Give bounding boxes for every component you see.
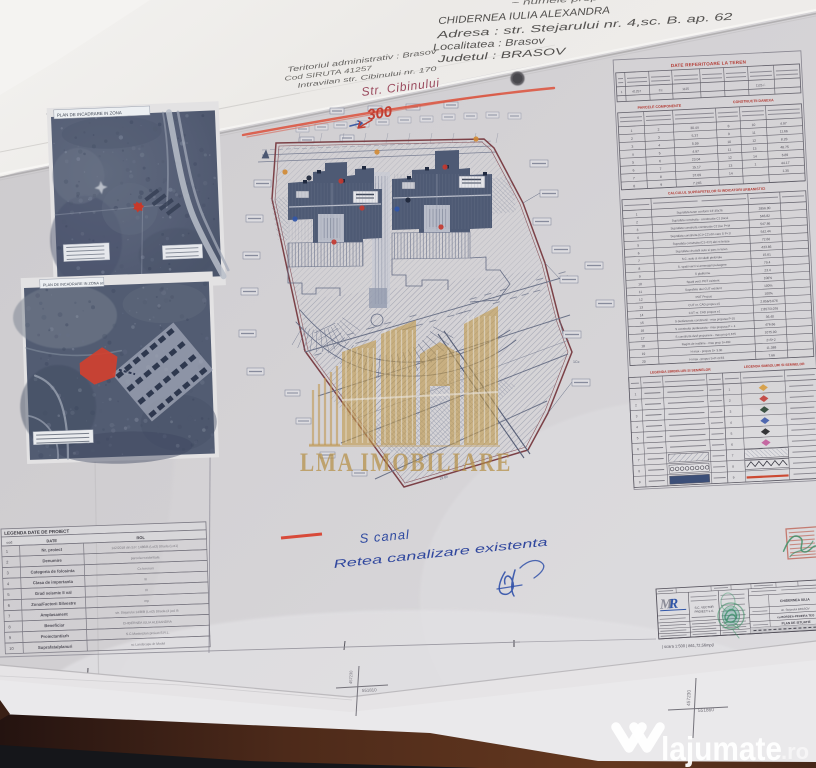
svg-text:Amplasament: Amplasament — [40, 612, 68, 618]
svg-text:11.388: 11.388 — [766, 345, 776, 349]
svg-text:14: 14 — [729, 171, 733, 175]
svg-text:44.17: 44.17 — [781, 161, 790, 165]
svg-text:8: 8 — [727, 124, 729, 128]
svg-text:12: 12 — [728, 156, 732, 160]
svg-text:7.66: 7.66 — [768, 353, 775, 357]
svg-text:12: 12 — [752, 139, 756, 143]
svg-text:551810: 551810 — [362, 687, 377, 693]
svg-text:15: 15 — [640, 321, 644, 325]
svg-text:10: 10 — [727, 140, 731, 144]
svg-text:12: 12 — [639, 298, 643, 302]
svg-text:37.09: 37.09 — [692, 173, 701, 177]
svg-text:100%: 100% — [764, 291, 773, 295]
svg-text:23.4: 23.4 — [764, 268, 771, 272]
svg-text:1Cc: 1Cc — [573, 360, 580, 364]
svg-text:Beneficiar: Beneficiar — [44, 622, 65, 628]
svg-text:1075.00: 1075.00 — [765, 330, 777, 335]
svg-text:546.82: 546.82 — [760, 214, 770, 218]
svg-text:Proiectant/arh: Proiectant/arh — [41, 633, 70, 639]
svg-text:mp: mp — [144, 599, 149, 603]
svg-text:79.4: 79.4 — [764, 260, 771, 264]
svg-text:14: 14 — [753, 154, 757, 158]
svg-text:2856.00: 2856.00 — [758, 206, 770, 211]
svg-text:14: 14 — [640, 313, 644, 317]
svg-text:4: 4 — [632, 153, 634, 157]
svg-text:DATE: DATE — [46, 538, 57, 543]
svg-text:457230: 457230 — [348, 670, 353, 684]
svg-text:6: 6 — [632, 168, 634, 172]
svg-text:9: 9 — [660, 183, 662, 187]
svg-text:III: III — [144, 577, 147, 581]
svg-text:15.61: 15.61 — [763, 253, 772, 257]
svg-text:Denumire: Denumire — [42, 558, 62, 564]
svg-text:6: 6 — [638, 251, 640, 255]
svg-text:30.44: 30.44 — [690, 126, 699, 130]
svg-text:1: 1 — [636, 213, 638, 217]
svg-text:36.40: 36.40 — [766, 315, 775, 319]
svg-text:5.09: 5.09 — [692, 142, 699, 146]
svg-text:1125 /-: 1125 /- — [756, 83, 766, 87]
svg-text:10: 10 — [751, 123, 755, 127]
svg-text:13: 13 — [728, 164, 732, 168]
svg-text:cod: cod — [6, 541, 12, 545]
svg-text:7: 7 — [638, 259, 640, 263]
svg-text:8: 8 — [638, 267, 640, 271]
svg-text:10: 10 — [638, 282, 642, 286]
svg-text:5.37: 5.37 — [691, 134, 698, 138]
svg-text:11: 11 — [752, 131, 756, 135]
svg-text:11: 11 — [639, 290, 643, 294]
svg-text:POT Propus: POT Propus — [695, 294, 712, 299]
svg-text:5: 5 — [632, 160, 634, 164]
svg-text:4: 4 — [658, 143, 660, 147]
svg-text:433.66: 433.66 — [761, 245, 771, 249]
svg-text:23.04: 23.04 — [692, 157, 701, 161]
svg-text:5: 5 — [659, 151, 661, 155]
svg-text:4.97: 4.97 — [692, 149, 699, 153]
svg-text:19: 19 — [642, 352, 646, 356]
svg-text:13: 13 — [639, 305, 643, 309]
svg-text:17: 17 — [641, 336, 645, 340]
svg-text:3: 3 — [636, 228, 638, 232]
svg-text:8.28: 8.28 — [781, 137, 788, 141]
svg-text:7: 7 — [659, 167, 661, 171]
svg-text:72.66: 72.66 — [762, 237, 771, 241]
svg-text:.ro: .ro — [781, 739, 809, 764]
svg-text:547.86: 547.86 — [760, 222, 770, 226]
svg-text:Nr. proiect: Nr. proiect — [41, 547, 62, 553]
svg-text:18: 18 — [641, 344, 645, 348]
svg-text:3: 3 — [631, 145, 633, 149]
svg-text:LMA IMOBILIARE: LMA IMOBILIARE — [300, 448, 512, 477]
svg-text:41257: 41257 — [632, 89, 641, 93]
svg-text:2: 2 — [631, 137, 633, 141]
svg-text:2: 2 — [636, 220, 638, 224]
svg-text:15.17: 15.17 — [692, 165, 701, 169]
svg-text:6: 6 — [659, 159, 661, 163]
svg-text:7: 7 — [633, 176, 635, 180]
svg-text:6.89: 6.89 — [782, 153, 789, 157]
svg-text:4: 4 — [637, 236, 639, 240]
svg-text:9: 9 — [728, 132, 730, 136]
svg-text:ROL: ROL — [136, 535, 145, 540]
svg-text:Cc: Cc — [659, 88, 663, 92]
svg-text:1125: 1125 — [682, 87, 689, 91]
svg-text:11.66: 11.66 — [780, 129, 789, 133]
svg-text:2: 2 — [658, 128, 660, 132]
svg-text:S platforme: S platforme — [695, 271, 711, 276]
svg-text:1: 1 — [631, 129, 633, 133]
svg-text:2+5+2: 2+5+2 — [766, 338, 776, 342]
svg-text:1.35: 1.35 — [782, 169, 789, 173]
svg-text:48.75: 48.75 — [780, 145, 789, 149]
svg-text:1: 1 — [754, 162, 756, 166]
svg-text:4.97: 4.97 — [780, 121, 787, 125]
svg-text:III: III — [145, 588, 148, 592]
svg-text:2.856/3.076: 2.856/3.076 — [760, 299, 778, 304]
svg-text:457230: 457230 — [686, 690, 693, 707]
svg-text:100%: 100% — [764, 276, 773, 280]
svg-text:542.44: 542.44 — [761, 229, 771, 233]
svg-text:20: 20 — [642, 360, 646, 364]
svg-text:8: 8 — [633, 184, 635, 188]
svg-text:5: 5 — [637, 244, 639, 248]
svg-text:11: 11 — [728, 148, 732, 152]
svg-text:lajumate: lajumate — [661, 730, 782, 767]
svg-text:Cc terenuri: Cc terenuri — [137, 566, 154, 571]
svg-text:13: 13 — [753, 147, 757, 151]
svg-text:16: 16 — [640, 329, 644, 333]
svg-text:8: 8 — [660, 175, 662, 179]
svg-text:100%: 100% — [764, 284, 773, 288]
svg-text:551860: 551860 — [698, 707, 715, 714]
svg-text:3: 3 — [658, 136, 660, 140]
svg-text:9: 9 — [639, 275, 641, 279]
svg-text:476.66: 476.66 — [765, 322, 775, 326]
svg-text:2.857/3.076: 2.857/3.076 — [761, 307, 779, 312]
svg-text:7.245: 7.245 — [693, 181, 702, 185]
